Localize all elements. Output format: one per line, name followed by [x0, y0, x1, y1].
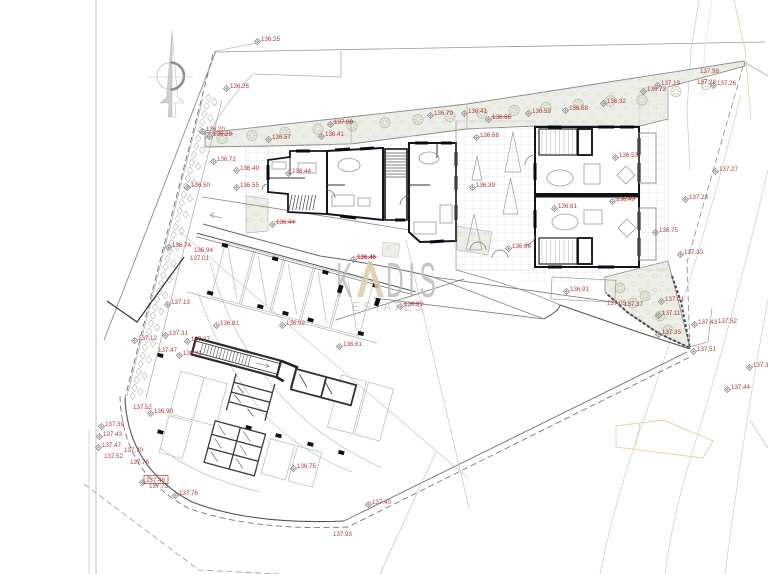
svg-text:136.50: 136.50 [191, 182, 210, 189]
svg-text:137.19: 137.19 [661, 80, 680, 87]
svg-text:137.98: 137.98 [700, 68, 719, 75]
svg-text:137.76: 137.76 [179, 490, 198, 497]
svg-text:136.90: 136.90 [154, 408, 173, 415]
svg-text:137.26: 137.26 [717, 80, 736, 87]
svg-text:136.94: 136.94 [194, 247, 213, 254]
svg-text:137.01: 137.01 [665, 296, 684, 303]
svg-text:137.47: 137.47 [158, 347, 177, 354]
svg-text:136.61: 136.61 [343, 341, 362, 348]
svg-text:137.37: 137.37 [191, 336, 210, 343]
svg-text:136.74: 136.74 [172, 242, 191, 249]
svg-text:136.41: 136.41 [468, 108, 487, 115]
svg-text:137.11: 137.11 [662, 310, 681, 317]
svg-text:136.53: 136.53 [619, 152, 638, 159]
svg-text:136.66: 136.66 [492, 114, 511, 121]
svg-text:136.91: 136.91 [570, 286, 589, 293]
svg-text:136.26: 136.26 [230, 83, 249, 90]
svg-text:136.44: 136.44 [276, 219, 295, 226]
svg-text:136.55: 136.55 [240, 182, 259, 189]
svg-text:137.23: 137.23 [689, 194, 708, 201]
svg-text:136.73: 136.73 [647, 86, 666, 93]
svg-text:137.01: 137.01 [190, 255, 209, 262]
svg-text:136.29: 136.29 [213, 131, 232, 138]
svg-text:137.43: 137.43 [103, 431, 122, 438]
svg-text:136.39: 136.39 [476, 182, 495, 189]
svg-text:136.72: 136.72 [217, 156, 236, 163]
svg-text:137.40: 137.40 [372, 499, 391, 506]
svg-text:137.76: 137.76 [130, 459, 149, 466]
svg-text:136.79: 136.79 [434, 110, 453, 117]
svg-text:136.53: 136.53 [532, 108, 551, 115]
svg-text:137.35: 137.35 [662, 329, 681, 336]
svg-text:137.12: 137.12 [138, 335, 157, 342]
svg-text:137.00: 137.00 [334, 119, 353, 126]
svg-text:137.43: 137.43 [698, 319, 717, 326]
svg-text:136.46: 136.46 [357, 254, 376, 261]
svg-text:136.75: 136.75 [659, 227, 678, 234]
svg-text:137.52: 137.52 [718, 318, 737, 325]
svg-text:136.21: 136.21 [183, 350, 202, 357]
svg-text:136.75: 136.75 [297, 463, 316, 470]
svg-text:137.47: 137.47 [102, 442, 121, 449]
svg-text:137.52: 137.52 [104, 453, 123, 460]
svg-text:137.37: 137.37 [624, 301, 643, 308]
svg-text:137.27: 137.27 [719, 166, 738, 173]
svg-text:136.68: 136.68 [480, 132, 499, 139]
svg-text:137.52: 137.52 [133, 404, 152, 411]
svg-text:137.70: 137.70 [124, 447, 143, 454]
svg-text:136.81: 136.81 [220, 320, 239, 327]
svg-text:136.49: 136.49 [240, 165, 259, 172]
svg-text:137.73: 137.73 [149, 483, 168, 490]
svg-text:136.93: 136.93 [404, 301, 423, 308]
svg-text:136.58: 136.58 [569, 105, 588, 112]
svg-text:K: K [336, 254, 353, 308]
svg-text:136.66: 136.66 [512, 243, 531, 250]
svg-text:137.38: 137.38 [753, 362, 768, 369]
svg-text:137.30: 137.30 [684, 249, 703, 256]
svg-text:137.13: 137.13 [171, 299, 190, 306]
svg-text:137.44: 137.44 [731, 384, 750, 391]
svg-text:136.41: 136.41 [325, 131, 344, 138]
svg-text:137.31: 137.31 [169, 330, 188, 337]
svg-text:137.51: 137.51 [697, 346, 716, 353]
svg-text:136.49: 136.49 [616, 196, 635, 203]
svg-text:137.93: 137.93 [333, 531, 352, 538]
svg-text:136.44: 136.44 [292, 168, 311, 175]
svg-text:136.25: 136.25 [261, 36, 280, 43]
svg-text:136.32: 136.32 [607, 98, 626, 105]
svg-text:136.61: 136.61 [558, 203, 577, 210]
svg-text:136.92: 136.92 [286, 320, 305, 327]
svg-text:137.39: 137.39 [105, 421, 124, 428]
svg-text:136.57: 136.57 [272, 134, 291, 141]
